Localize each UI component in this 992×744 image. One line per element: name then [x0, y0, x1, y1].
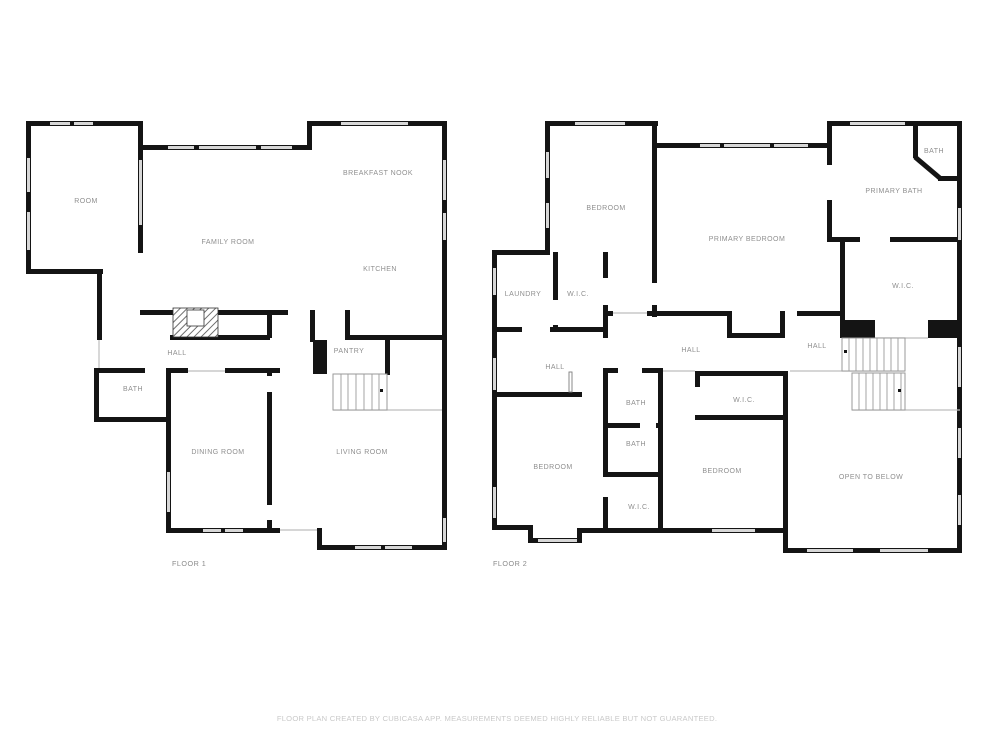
fireplace-icon [173, 308, 218, 337]
room-label-room: ROOM [74, 198, 98, 205]
floor2-plan: BEDROOM LAUNDRY W.I.C. PRIMARY BEDROOM B… [492, 121, 962, 568]
room-label-hall-center: HALL [681, 347, 700, 354]
room-label-pantry: PANTRY [334, 348, 364, 355]
room-label-open-to-below: OPEN TO BELOW [839, 474, 903, 481]
floor1-title: FLOOR 1 [172, 559, 206, 568]
floor1-stairs-icon [333, 374, 387, 410]
room-label-living-room: LIVING ROOM [336, 449, 388, 456]
room-label-bedroom-center: BEDROOM [702, 468, 741, 475]
room-label-hall-f1: HALL [167, 350, 186, 357]
room-label-hall-west: HALL [545, 364, 564, 371]
floor1-plan: ROOM FAMILY ROOM BREAKFAST NOOK KITCHEN … [26, 121, 447, 568]
room-label-wic-laundry: W.I.C. [567, 291, 589, 298]
room-label-wic-primary: W.I.C. [892, 283, 914, 290]
room-label-hall-east: HALL [807, 343, 826, 350]
hall-door-icon [569, 372, 572, 392]
room-label-dining-room: DINING ROOM [191, 449, 244, 456]
room-label-family-room: FAMILY ROOM [202, 239, 255, 246]
room-label-primary-bath: PRIMARY BATH [865, 188, 922, 195]
room-label-wic-column: W.I.C. [628, 504, 650, 511]
floor2-walls [492, 121, 962, 553]
room-label-wic-center: W.I.C. [733, 397, 755, 404]
room-label-bath-f1: BATH [123, 386, 143, 393]
room-label-laundry: LAUNDRY [505, 291, 541, 298]
room-label-primary-bedroom: PRIMARY BEDROOM [709, 236, 786, 243]
room-label-breakfast-nook: BREAKFAST NOOK [343, 170, 413, 177]
disclaimer-text: FLOOR PLAN CREATED BY CUBICASA APP. MEAS… [277, 714, 717, 723]
room-label-bedroom-west: BEDROOM [533, 464, 572, 471]
room-label-bath-corner: BATH [924, 148, 944, 155]
room-label-bath-upper: BATH [626, 400, 646, 407]
floor2-title: FLOOR 2 [493, 559, 527, 568]
room-label-kitchen: KITCHEN [363, 266, 397, 273]
floor1-walls [26, 121, 447, 550]
room-label-bath-lower: BATH [626, 441, 646, 448]
floor2-stairs-icon [842, 338, 905, 410]
room-label-bedroom-top: BEDROOM [586, 205, 625, 212]
floor-plan-canvas: ROOM FAMILY ROOM BREAKFAST NOOK KITCHEN … [0, 0, 992, 744]
